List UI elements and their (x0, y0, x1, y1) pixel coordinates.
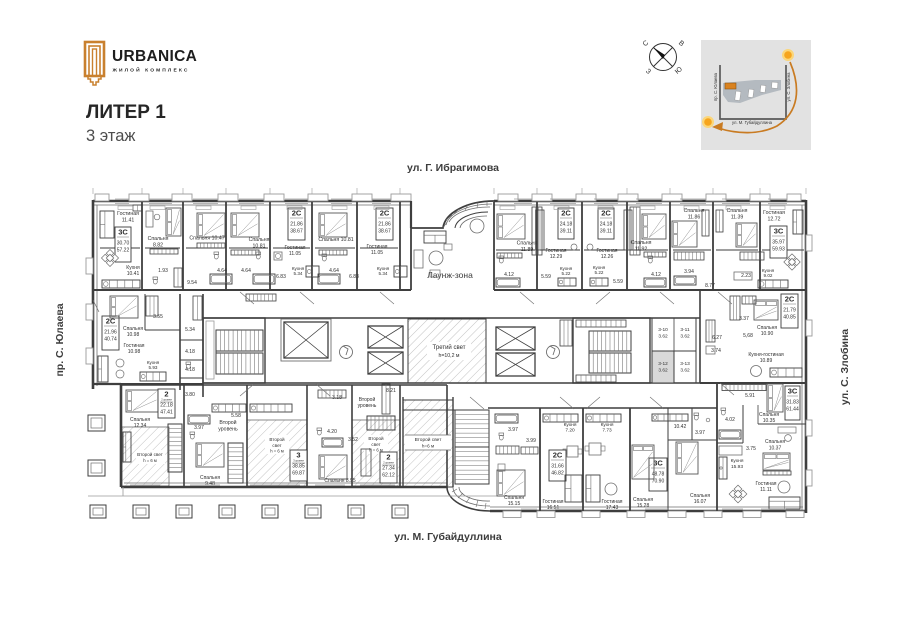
svg-text:Кухня: Кухня (564, 422, 577, 428)
svg-text:2: 2 (386, 453, 390, 462)
svg-text:69.87: 69.87 (292, 471, 305, 477)
svg-text:пр. С. Юлаева: пр. С. Юлаева (713, 72, 718, 101)
svg-text:10.35: 10.35 (763, 418, 776, 424)
svg-text:5.59: 5.59 (613, 279, 623, 285)
svg-text:10.42: 10.42 (674, 424, 687, 430)
svg-text:38.67: 38.67 (290, 229, 303, 235)
svg-text:11.41: 11.41 (122, 218, 135, 224)
svg-text:URBANICA: URBANICA (112, 48, 197, 65)
svg-text:59.93: 59.93 (772, 247, 785, 253)
svg-text:8.21: 8.21 (386, 388, 396, 394)
svg-text:уровень: уровень (218, 427, 238, 433)
svg-text:5.34: 5.34 (185, 327, 195, 333)
svg-text:5.34: 5.34 (379, 271, 388, 276)
svg-text:h=10,2 м: h=10,2 м (438, 353, 459, 359)
svg-text:2 уровня: 2 уровня (161, 398, 172, 402)
svg-text:11.89: 11.89 (521, 247, 534, 253)
svg-text:3 этаж: 3 этаж (86, 127, 135, 145)
svg-text:6.27: 6.27 (712, 335, 722, 341)
svg-text:6.83: 6.83 (349, 274, 359, 280)
svg-text:3.97: 3.97 (194, 425, 204, 431)
svg-text:Гостиная: Гостиная (763, 210, 785, 216)
svg-text:27.34: 27.34 (382, 466, 395, 472)
svg-text:3.52: 3.52 (348, 437, 358, 443)
svg-text:10.98: 10.98 (128, 349, 141, 355)
svg-text:30.70: 30.70 (117, 241, 130, 247)
svg-text:12.26: 12.26 (601, 254, 614, 260)
svg-text:21.96: 21.96 (104, 330, 117, 336)
svg-text:3.62: 3.62 (658, 334, 668, 340)
svg-text:3С: 3С (653, 459, 663, 468)
svg-text:3.80: 3.80 (185, 392, 195, 398)
svg-text:15.15: 15.15 (508, 501, 521, 507)
svg-text:24.18: 24.18 (600, 222, 613, 228)
svg-text:9.54: 9.54 (187, 280, 197, 286)
svg-text:2С: 2С (561, 209, 571, 218)
svg-text:3-12: 3-12 (658, 361, 668, 367)
svg-text:39.11: 39.11 (560, 229, 572, 235)
svg-text:2С: 2С (292, 209, 302, 218)
svg-text:24.18: 24.18 (560, 222, 573, 228)
svg-text:47.41: 47.41 (160, 410, 173, 416)
svg-text:12.72: 12.72 (768, 217, 781, 223)
svg-text:2С: 2С (601, 209, 611, 218)
svg-text:38.67: 38.67 (378, 229, 391, 235)
svg-text:Второй: Второй (269, 436, 285, 442)
svg-text:57.22: 57.22 (117, 248, 130, 254)
svg-text:3С: 3С (118, 228, 128, 237)
svg-text:11.05: 11.05 (371, 250, 383, 256)
svg-text:5.22: 5.22 (562, 271, 571, 276)
svg-text:16.07: 16.07 (694, 499, 707, 505)
svg-text:9.02: 9.02 (764, 273, 773, 278)
svg-text:h=6 м: h=6 м (422, 444, 434, 449)
svg-text:2С: 2С (785, 295, 795, 304)
svg-text:21.79: 21.79 (783, 308, 796, 314)
svg-text:5.59: 5.59 (541, 274, 551, 280)
svg-text:40.74: 40.74 (104, 337, 117, 343)
svg-text:10.37: 10.37 (769, 446, 782, 452)
svg-text:5.34: 5.34 (294, 271, 303, 276)
svg-text:5.22: 5.22 (595, 270, 604, 275)
svg-text:3.97: 3.97 (695, 430, 705, 436)
svg-text:3.62: 3.62 (680, 334, 690, 340)
svg-text:10.89: 10.89 (760, 358, 773, 364)
svg-text:3.97: 3.97 (508, 427, 518, 433)
svg-text:Второй свет: Второй свет (415, 436, 443, 443)
svg-text:3-11: 3-11 (680, 327, 690, 333)
svg-text:38.85: 38.85 (292, 464, 305, 470)
svg-text:Спальня: Спальня (727, 208, 748, 214)
svg-text:39.11: 39.11 (600, 229, 612, 235)
svg-text:уровень: уровень (358, 403, 377, 409)
svg-text:Кухня: Кухня (731, 458, 744, 464)
svg-text:3.62: 3.62 (680, 368, 690, 374)
svg-text:Второй свет: Второй свет (137, 451, 164, 457)
svg-text:4.64: 4.64 (217, 268, 227, 274)
svg-text:21.86: 21.86 (378, 222, 391, 228)
svg-text:31.83: 31.83 (786, 400, 799, 406)
svg-text:21.86: 21.86 (290, 222, 303, 228)
svg-text:ул. С. Злобина: ул. С. Злобина (786, 72, 791, 102)
svg-text:22.18: 22.18 (160, 403, 173, 409)
svg-text:3С: 3С (774, 227, 784, 236)
svg-text:61.44: 61.44 (786, 407, 799, 413)
svg-text:11.39: 11.39 (731, 215, 744, 221)
svg-text:3.37: 3.37 (739, 316, 749, 322)
svg-text:10.98: 10.98 (127, 332, 140, 338)
svg-text:3-10: 3-10 (658, 327, 668, 333)
svg-text:40.85: 40.85 (783, 315, 796, 321)
svg-text:4.12: 4.12 (504, 272, 514, 278)
svg-text:2С: 2С (380, 209, 390, 218)
svg-text:11.11: 11.11 (760, 487, 772, 493)
svg-text:Гостиная: Гостиная (117, 211, 139, 217)
svg-text:12.34: 12.34 (134, 423, 147, 429)
svg-text:1.93: 1.93 (158, 268, 168, 274)
svg-text:8.77: 8.77 (705, 283, 715, 289)
svg-text:ул. Г. Ибрагимова: ул. Г. Ибрагимова (407, 162, 499, 174)
svg-text:4.20: 4.20 (327, 429, 337, 435)
svg-text:2 уровня: 2 уровня (383, 461, 394, 465)
svg-text:2.23: 2.23 (741, 273, 751, 279)
svg-text:ул. М. Губайдуллина: ул. М. Губайдуллина (394, 531, 502, 543)
svg-text:3-13: 3-13 (680, 361, 690, 367)
svg-text:3.94: 3.94 (684, 269, 694, 275)
svg-text:3.75: 3.75 (746, 446, 756, 452)
svg-text:35.97: 35.97 (772, 240, 785, 246)
svg-text:4.02: 4.02 (725, 417, 735, 423)
svg-text:31.66: 31.66 (551, 464, 564, 470)
svg-text:4.64: 4.64 (329, 268, 339, 274)
svg-text:Спальня: Спальня (684, 208, 705, 214)
svg-text:7.73: 7.73 (602, 428, 612, 434)
svg-text:Спальня: Спальня (765, 439, 785, 445)
svg-text:4.64: 4.64 (241, 268, 251, 274)
svg-text:Спальня: Спальня (148, 236, 169, 242)
svg-text:5.58: 5.58 (231, 413, 241, 419)
svg-text:10.90: 10.90 (761, 331, 774, 337)
svg-text:6.83: 6.83 (276, 274, 286, 280)
svg-text:15.93: 15.93 (731, 464, 743, 470)
svg-text:свет: свет (371, 442, 381, 447)
svg-text:10.41: 10.41 (127, 271, 140, 277)
svg-text:4.12: 4.12 (651, 272, 661, 278)
svg-text:Кухня: Кухня (601, 422, 614, 428)
svg-text:h = 6 м: h = 6 м (270, 449, 284, 454)
svg-text:9.48: 9.48 (205, 481, 215, 487)
svg-text:Второй: Второй (359, 396, 376, 403)
svg-text:Спальня: Спальня (517, 241, 538, 247)
svg-text:h = 6 м: h = 6 м (143, 458, 157, 463)
svg-text:3 уровня: 3 уровня (293, 459, 304, 463)
svg-text:3.99: 3.99 (526, 438, 536, 444)
svg-text:пр. С. Юлаева: пр. С. Юлаева (54, 303, 66, 376)
svg-text:46.82: 46.82 (551, 471, 564, 477)
svg-text:3.62: 3.62 (658, 368, 668, 374)
svg-text:Спальня 10.47: Спальня 10.47 (189, 236, 224, 242)
svg-text:ул. М. Губайдуллина: ул. М. Губайдуллина (732, 120, 773, 125)
svg-text:15.28: 15.28 (637, 503, 650, 509)
svg-text:5.91: 5.91 (745, 393, 755, 399)
svg-text:Третий свет: Третий свет (433, 344, 466, 351)
svg-text:Спальня: Спальня (631, 240, 652, 246)
svg-text:7.20: 7.20 (565, 428, 575, 434)
svg-text:ЛИТЕР 1: ЛИТЕР 1 (86, 102, 166, 123)
svg-text:Спальня: Спальня (249, 237, 270, 243)
svg-text:10.81: 10.81 (253, 244, 266, 250)
svg-text:свет: свет (272, 443, 282, 448)
svg-text:12.29: 12.29 (550, 254, 563, 260)
svg-text:Лаунж-зона: Лаунж-зона (427, 270, 473, 280)
svg-text:5.93: 5.93 (149, 365, 158, 370)
svg-text:17.43: 17.43 (606, 505, 619, 511)
svg-text:62.12: 62.12 (382, 473, 395, 479)
svg-text:4.18: 4.18 (185, 349, 195, 355)
svg-text:5,68: 5,68 (743, 333, 753, 339)
svg-text:11.05: 11.05 (289, 251, 301, 257)
svg-text:16.51: 16.51 (547, 505, 560, 511)
svg-text:8.82: 8.82 (153, 243, 163, 249)
svg-text:Второй: Второй (219, 419, 236, 426)
svg-text:2: 2 (164, 390, 168, 399)
svg-text:11.86: 11.86 (688, 215, 701, 221)
svg-text:3: 3 (296, 451, 300, 460)
svg-text:ул. С. Злобина: ул. С. Злобина (839, 329, 851, 405)
svg-text:Второй: Второй (368, 435, 384, 441)
svg-text:2С: 2С (553, 451, 563, 460)
svg-text:3С: 3С (788, 387, 798, 396)
svg-text:3.74: 3.74 (711, 348, 721, 354)
svg-text:Спальня 10.81: Спальня 10.81 (318, 237, 353, 243)
